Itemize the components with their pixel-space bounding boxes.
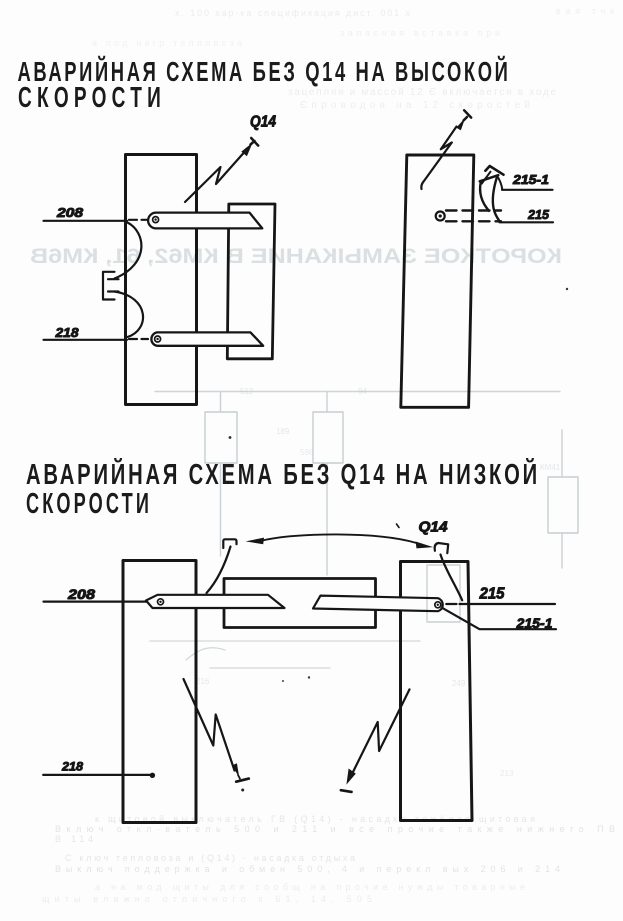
svg-text:216: 216 (196, 677, 210, 686)
svg-text:запасная вставка при: запасная вставка при (340, 28, 500, 38)
svg-text:а под нагр тепловоза: а под нагр тепловоза (92, 38, 242, 48)
svg-text:215-1: 215-1 (512, 172, 549, 187)
svg-text:СКОРОСТИ: СКОРОСТИ (26, 488, 152, 520)
svg-text:АВАРИЙНАЯ СХЕМА БЕЗ Q14 НА НИЗ: АВАРИЙНАЯ СХЕМА БЕЗ Q14 НА НИЗКОЙ (26, 457, 540, 491)
svg-text:208: 208 (67, 586, 95, 602)
svg-text:КМ41: КМ41 (540, 463, 561, 472)
svg-text:586: 586 (300, 448, 314, 457)
svg-text:189: 189 (276, 427, 290, 436)
svg-text:КОРОТКОЕ ЗАМЫКАНИЕ В КМ62, 61,: КОРОТКОЕ ЗАМЫКАНИЕ В КМ62, 61, КМ6В (30, 245, 562, 268)
svg-text:213: 213 (500, 769, 514, 778)
svg-text:Єпроводов на 12 скоростей: Єпроводов на 12 скоростей (300, 100, 530, 111)
svg-text:вая тчк: вая тчк (556, 6, 614, 16)
svg-text:Q14: Q14 (250, 114, 276, 131)
svg-text:249: 249 (452, 679, 466, 688)
svg-text:зацепляя и массой 12 Є включае: зацепляя и массой 12 Є включается в ходе (288, 87, 556, 98)
svg-text:215: 215 (479, 586, 506, 603)
svg-text:В 114: В 114 (55, 834, 93, 844)
svg-text:Q14: Q14 (419, 519, 449, 536)
svg-text:к щитовой выключатель ГВ (Q: к щитовой выключатель ГВ (Q14) - насадка… (95, 814, 535, 824)
svg-text:94: 94 (358, 387, 367, 396)
svg-text:щиты влажно отличного к 61: щиты влажно отличного к 61, 14, 505 (42, 894, 372, 904)
svg-text:Включ откл-ватель 500 и 211: Включ откл-ватель 500 и 211 и все прочие… (55, 824, 615, 834)
svg-text:СКОРОСТИ: СКОРОСТИ (18, 82, 166, 114)
svg-text:512: 512 (240, 387, 254, 396)
svg-text:208: 208 (56, 205, 84, 220)
svg-text:С ключ тепловоза и (Q14) -: С ключ тепловоза и (Q14) - насадка отдых… (65, 853, 355, 863)
svg-text:х. 100 хар-ка спецификация: х. 100 хар-ка спецификация дист. 001 х (175, 8, 411, 18)
svg-text:215-1: 215-1 (515, 615, 552, 631)
svg-text:218: 218 (54, 325, 79, 340)
svg-text:218: 218 (61, 760, 83, 774)
svg-text:215: 215 (527, 207, 550, 222)
svg-text:а на мод щиты для сообщ на: а на мод щиты для сообщ на прочие нужды … (95, 882, 525, 892)
svg-text:Выключ поддержка и обмен 5: Выключ поддержка и обмен 500, 4 и перекл… (55, 864, 560, 874)
